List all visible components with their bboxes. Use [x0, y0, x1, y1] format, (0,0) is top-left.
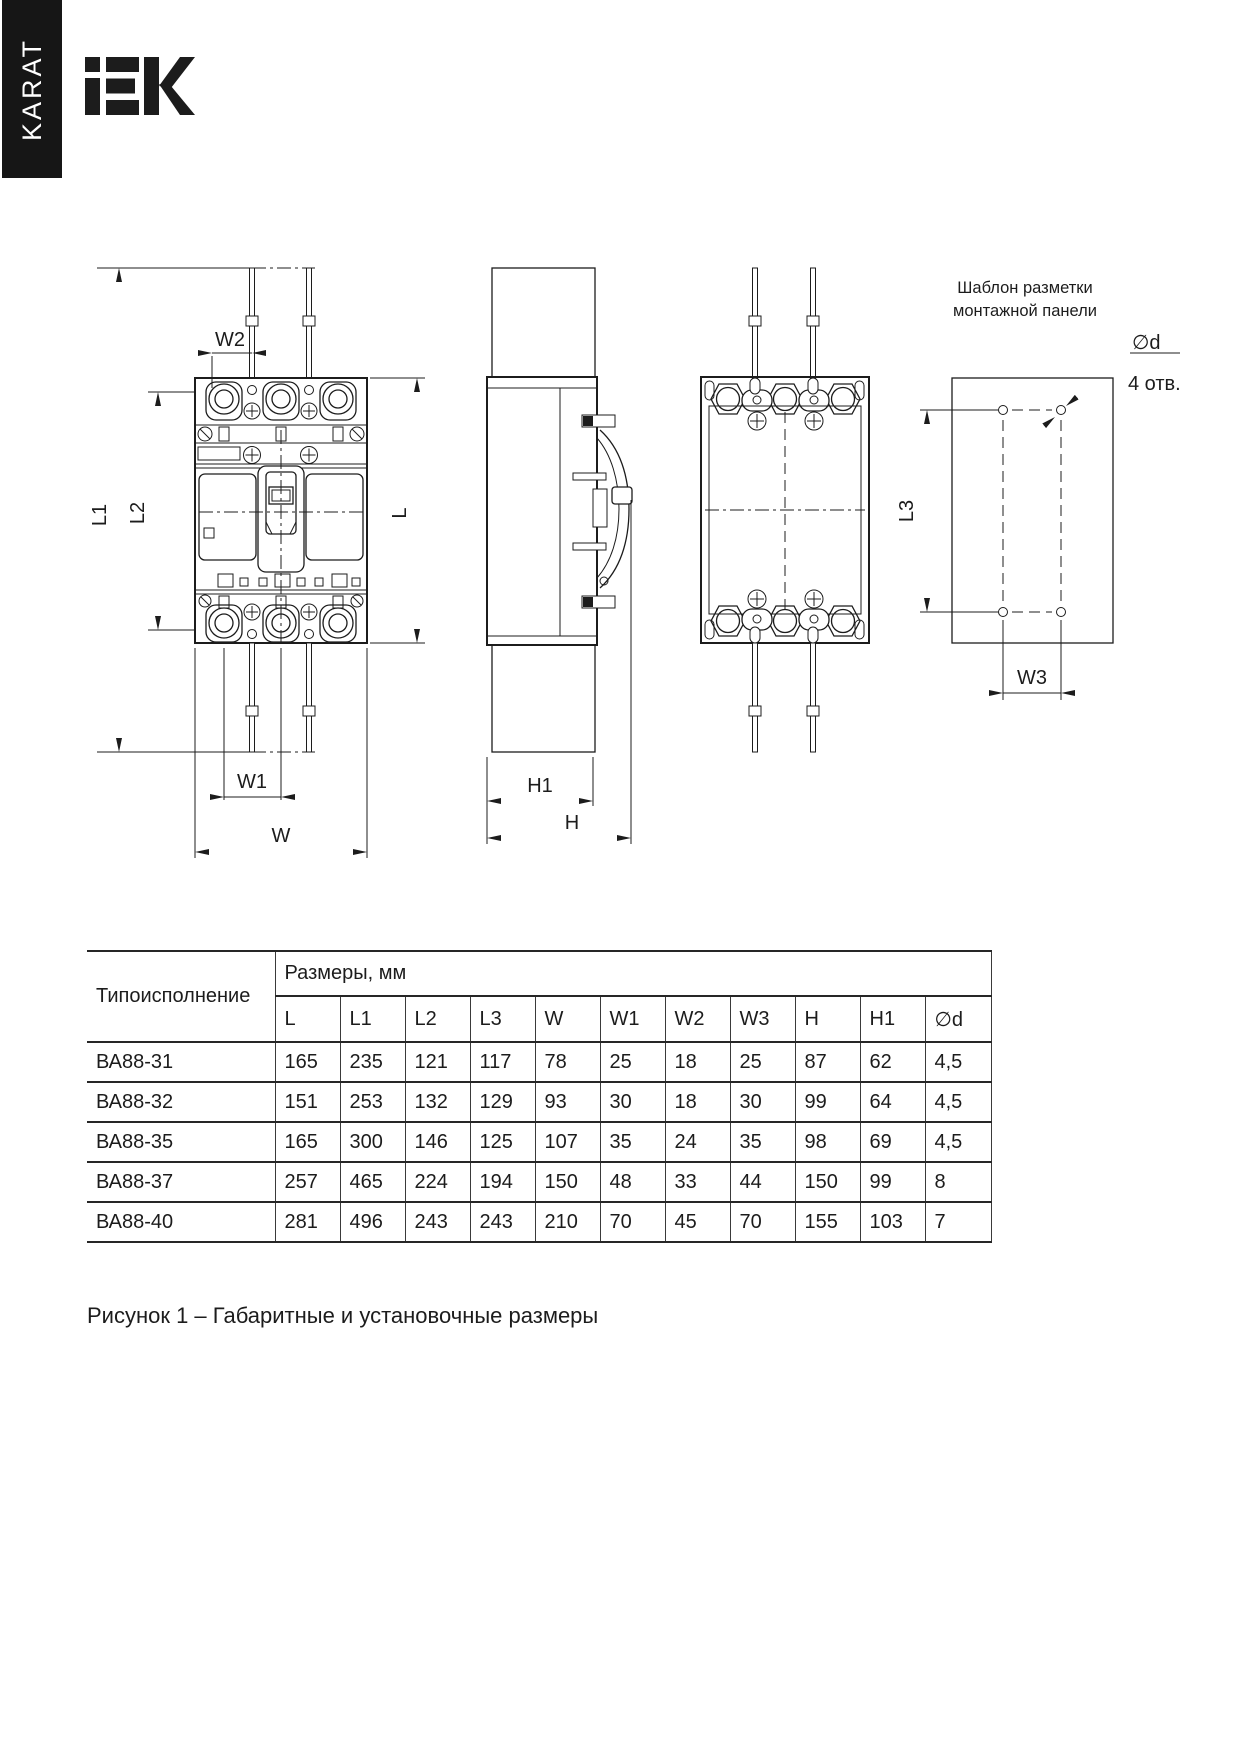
dim-label-w3: W3 [1017, 667, 1047, 689]
col-header-h1: H1 [860, 996, 925, 1042]
dim-label-w: W [272, 825, 291, 847]
template-title-line2: монтажной панели [953, 302, 1097, 320]
dim-label-l2: L2 [127, 502, 149, 524]
front-view-dimensions: L1 L2 L W2 W1 W [89, 268, 425, 858]
col-header-l1: L1 [340, 996, 405, 1042]
col-header-l: L [275, 996, 340, 1042]
dim-label-h1: H1 [527, 775, 553, 797]
dim-label-l3: L3 [896, 500, 918, 522]
col-header-l2: L2 [405, 996, 470, 1042]
col-header-w2: W2 [665, 996, 730, 1042]
row-name: ВА88-37 [87, 1162, 275, 1202]
dimensions-table: Типоисполнение Размеры, мм L L1 L2 L3 W … [87, 950, 992, 1243]
col-header-l3: L3 [470, 996, 535, 1042]
table-row: ВА88-35 165 300 146 125 107 35 24 35 98 … [87, 1122, 991, 1162]
dim-label-l: L [389, 507, 411, 518]
table-header-type: Типоисполнение [87, 951, 275, 1042]
table-row: ВА88-37 257 465 224 194 150 48 33 44 150… [87, 1162, 991, 1202]
dim-label-diameter: ∅d [1132, 332, 1161, 354]
col-header-w3: W3 [730, 996, 795, 1042]
dim-label-l1: L1 [89, 504, 111, 526]
side-view-drawing: H1 H [487, 268, 632, 844]
back-view-drawing [701, 268, 869, 752]
dim-label-w2: W2 [215, 329, 245, 351]
col-header-w: W [535, 996, 600, 1042]
col-header-h: H [795, 996, 860, 1042]
figure-caption: Рисунок 1 – Габаритные и установочные ра… [87, 1303, 598, 1329]
template-title-line1: Шаблон разметки [957, 279, 1092, 297]
col-header-w1: W1 [600, 996, 665, 1042]
table-row: ВА88-31 165 235 121 117 78 25 18 25 87 6… [87, 1042, 991, 1082]
row-name: ВА88-31 [87, 1042, 275, 1082]
table-row: ВА88-32 151 253 132 129 93 30 18 30 99 6… [87, 1082, 991, 1122]
holes-count-note: 4 отв. [1128, 373, 1181, 395]
table-header-dimensions-group: Размеры, мм [275, 951, 991, 996]
technical-drawing: L1 L2 L W2 W1 W [0, 0, 1245, 880]
mounting-template-drawing: Шаблон разметки монтажной панели L3 W3 ∅… [896, 279, 1181, 700]
row-name: ВА88-35 [87, 1122, 275, 1162]
dim-label-w1: W1 [237, 771, 267, 793]
row-name: ВА88-40 [87, 1202, 275, 1242]
table-row: ВА88-40 281 496 243 243 210 70 45 70 155… [87, 1202, 991, 1242]
dim-label-h: H [565, 812, 579, 834]
col-header-d: ∅d [925, 996, 991, 1042]
row-name: ВА88-32 [87, 1082, 275, 1122]
